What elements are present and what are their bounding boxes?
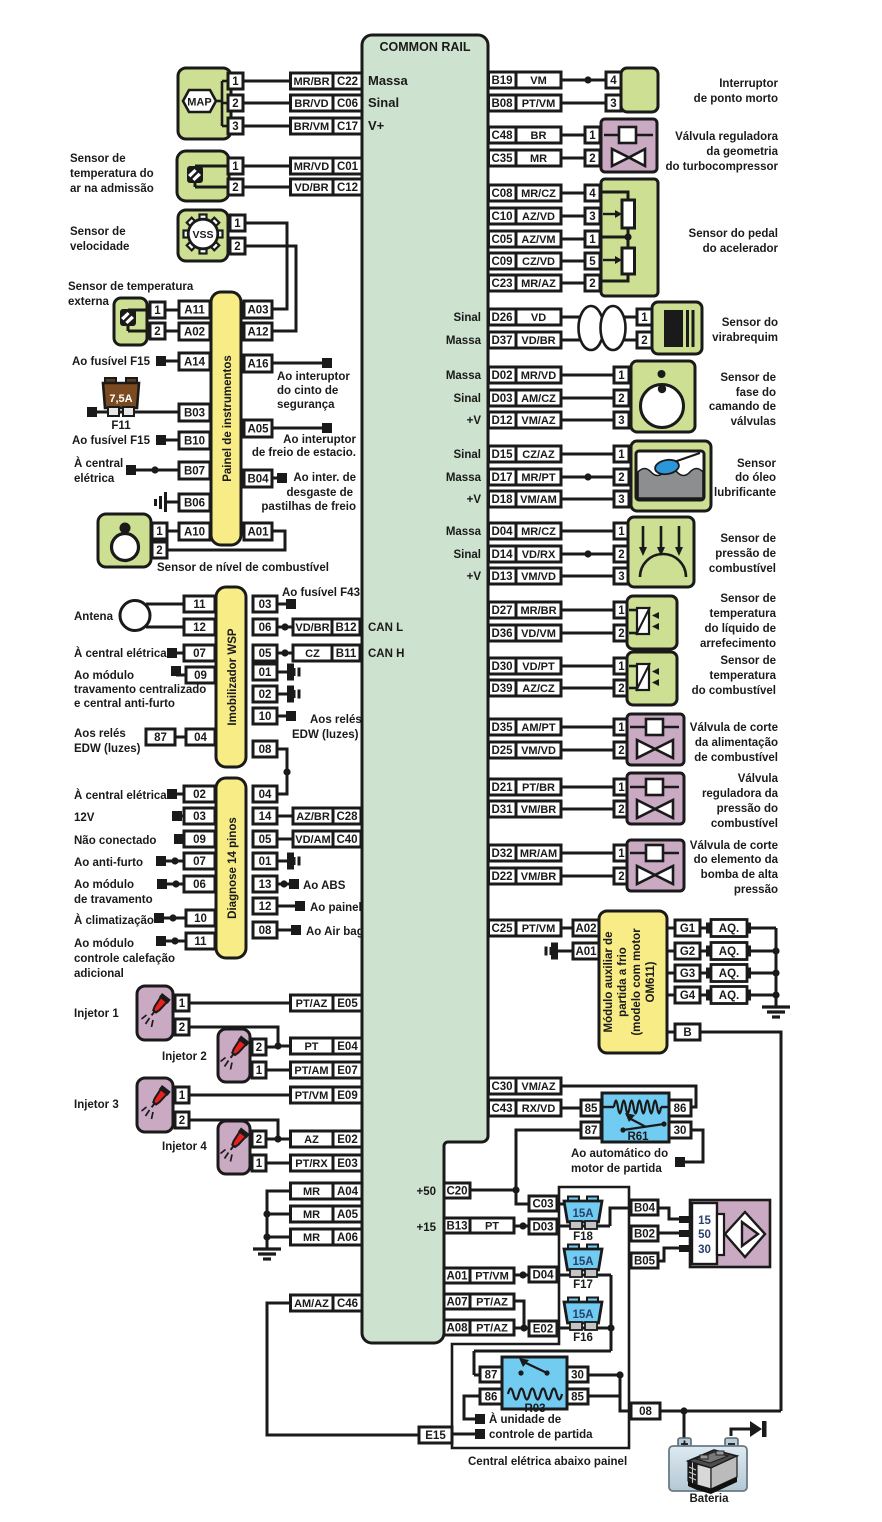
svg-text:F11: F11 [111, 420, 131, 432]
svg-text:D22: D22 [491, 871, 512, 883]
svg-text:do combustível: do combustível [692, 685, 776, 697]
svg-text:de combustível: de combustível [694, 752, 778, 764]
svg-text:AZ/BR: AZ/BR [296, 811, 330, 823]
svg-text:D35: D35 [491, 722, 513, 734]
svg-text:05: 05 [259, 648, 272, 660]
svg-text:D15: D15 [491, 449, 513, 461]
svg-text:12: 12 [259, 901, 272, 913]
svg-text:1: 1 [232, 76, 239, 88]
svg-text:C17: C17 [337, 121, 358, 133]
svg-text:CAN L: CAN L [368, 622, 403, 634]
svg-text:13: 13 [259, 879, 272, 891]
svg-text:Sensor de: Sensor de [720, 533, 776, 545]
svg-text:A02: A02 [575, 923, 596, 935]
svg-text:D03: D03 [491, 393, 512, 405]
svg-text:Injetor 2: Injetor 2 [162, 1051, 207, 1063]
svg-text:temperatura: temperatura [710, 670, 777, 682]
svg-text:2: 2 [618, 683, 624, 695]
svg-text:CAN H: CAN H [368, 648, 404, 660]
svg-text:MR/PT: MR/PT [521, 472, 556, 484]
svg-text:02: 02 [259, 689, 272, 701]
svg-text:B06: B06 [184, 498, 205, 510]
svg-text:C43: C43 [491, 1103, 512, 1115]
svg-text:2: 2 [618, 472, 624, 484]
svg-text:E05: E05 [337, 998, 358, 1010]
svg-text:02: 02 [193, 789, 206, 801]
svg-text:do elemento da: do elemento da [694, 854, 779, 866]
svg-text:Módulo auxiliar de: Módulo auxiliar de [603, 932, 615, 1033]
svg-text:A06: A06 [337, 1232, 358, 1244]
svg-text:3: 3 [618, 494, 624, 506]
svg-text:F18: F18 [573, 1231, 593, 1243]
svg-text:Sensor de temperatura: Sensor de temperatura [68, 281, 194, 293]
svg-text:A05: A05 [247, 424, 269, 436]
svg-text:MR: MR [303, 1232, 320, 1244]
svg-text:VM: VM [530, 75, 547, 87]
svg-text:B08: B08 [491, 98, 513, 110]
svg-text:D37: D37 [491, 335, 512, 347]
svg-text:A16: A16 [247, 359, 268, 371]
svg-text:Ao inter. de: Ao inter. de [293, 472, 356, 484]
svg-text:Válvula de corte: Válvula de corte [690, 722, 778, 734]
svg-text:14: 14 [259, 811, 272, 823]
svg-text:Ao fusível F15: Ao fusível F15 [72, 356, 151, 368]
svg-text:e central anti-furto: e central anti-furto [74, 698, 175, 710]
svg-text:externa: externa [68, 296, 110, 308]
svg-text:PT/VM: PT/VM [475, 1271, 509, 1283]
svg-text:C06: C06 [337, 98, 358, 110]
svg-text:VM/BR: VM/BR [521, 804, 557, 816]
svg-text:1: 1 [179, 1090, 186, 1102]
svg-text:de freio de estacio.: de freio de estacio. [252, 447, 356, 459]
svg-text:1: 1 [618, 722, 625, 734]
svg-text:G1: G1 [680, 923, 696, 935]
svg-text:segurança: segurança [277, 399, 335, 411]
svg-text:D27: D27 [491, 605, 512, 617]
svg-text:CZ: CZ [305, 648, 320, 660]
svg-text:2: 2 [156, 545, 162, 557]
svg-text:Ao fusível F15: Ao fusível F15 [72, 435, 151, 447]
svg-text:partida a frio: partida a frio [617, 947, 629, 1017]
svg-text:Ao painel: Ao painel [310, 902, 362, 914]
svg-text:de ponto morto: de ponto morto [694, 93, 778, 105]
svg-text:D02: D02 [491, 370, 512, 382]
svg-text:VD/BR: VD/BR [521, 335, 555, 347]
svg-text:A01: A01 [575, 946, 597, 958]
svg-text:VD/AM: VD/AM [295, 834, 330, 846]
svg-text:COMMON RAIL: COMMON RAIL [380, 40, 471, 54]
svg-text:11: 11 [194, 936, 207, 948]
svg-text:G3: G3 [680, 968, 695, 980]
svg-text:B13: B13 [446, 1221, 467, 1233]
svg-text:11: 11 [193, 599, 206, 611]
svg-text:MR: MR [303, 1186, 320, 1198]
svg-text:A14: A14 [184, 357, 206, 369]
svg-text:VD/PT: VD/PT [522, 661, 555, 673]
svg-text:do cinto de: do cinto de [277, 385, 338, 397]
svg-text:BR: BR [531, 130, 547, 142]
svg-text:3: 3 [589, 211, 595, 223]
svg-text:C03: C03 [532, 1199, 553, 1211]
svg-text:2: 2 [179, 1022, 185, 1034]
svg-text:Aos relés: Aos relés [74, 728, 126, 740]
svg-text:1: 1 [618, 370, 625, 382]
svg-text:Sensor de: Sensor de [70, 226, 126, 238]
svg-text:2: 2 [618, 804, 624, 816]
svg-text:3: 3 [618, 571, 624, 583]
svg-text:87: 87 [485, 1370, 498, 1382]
svg-text:Ao interuptor: Ao interuptor [283, 434, 356, 446]
svg-text:C22: C22 [337, 76, 358, 88]
svg-text:PT/VM: PT/VM [522, 923, 556, 935]
svg-text:G2: G2 [680, 946, 695, 958]
svg-text:motor de partida: motor de partida [571, 1163, 662, 1175]
svg-text:PT/BR: PT/BR [522, 782, 555, 794]
svg-text:Ao fusível F43: Ao fusível F43 [282, 587, 360, 599]
svg-text:D31: D31 [491, 804, 513, 816]
svg-text:2: 2 [232, 98, 238, 110]
svg-text:D13: D13 [491, 571, 512, 583]
svg-text:87: 87 [585, 1125, 598, 1137]
svg-text:EDW (luzes): EDW (luzes) [74, 743, 141, 755]
svg-text:2: 2 [234, 241, 240, 253]
svg-text:MR/AM: MR/AM [520, 848, 557, 860]
svg-text:30: 30 [571, 1370, 584, 1382]
svg-text:D18: D18 [491, 494, 513, 506]
svg-text:05: 05 [259, 834, 272, 846]
svg-text:+15: +15 [416, 1222, 436, 1234]
svg-text:MR/CZ: MR/CZ [521, 526, 556, 538]
svg-text:1: 1 [641, 312, 648, 324]
svg-text:MR/VD: MR/VD [294, 161, 330, 173]
svg-text:da alimentação: da alimentação [695, 737, 778, 749]
svg-text:E07: E07 [337, 1065, 357, 1077]
svg-text:PT/AZ: PT/AZ [476, 1297, 508, 1309]
svg-text:PT/VM: PT/VM [522, 98, 556, 110]
svg-text:86: 86 [674, 1103, 687, 1115]
svg-text:controle calefação: controle calefação [74, 953, 175, 965]
svg-text:D21: D21 [491, 782, 513, 794]
svg-text:03: 03 [259, 599, 272, 611]
svg-text:85: 85 [571, 1392, 584, 1404]
svg-text:E09: E09 [337, 1090, 357, 1102]
svg-text:Válvula de corte: Válvula de corte [690, 840, 778, 852]
svg-text:01: 01 [259, 667, 272, 679]
svg-text:C08: C08 [491, 188, 513, 200]
svg-text:A05: A05 [337, 1209, 359, 1221]
svg-text:2: 2 [618, 628, 624, 640]
svg-text:D36: D36 [491, 628, 512, 640]
svg-text:B12: B12 [335, 622, 356, 634]
svg-text:D39: D39 [491, 683, 512, 695]
svg-text:85: 85 [585, 1103, 598, 1115]
svg-text:50: 50 [698, 1229, 711, 1241]
svg-text:F17: F17 [573, 1279, 593, 1291]
svg-text:Sinal: Sinal [454, 393, 481, 405]
svg-text:Não conectado: Não conectado [74, 835, 156, 847]
svg-text:1: 1 [618, 782, 625, 794]
svg-text:B02: B02 [634, 1229, 655, 1241]
svg-text:15: 15 [698, 1215, 711, 1227]
svg-text:7,5A: 7,5A [109, 393, 132, 405]
svg-text:4: 4 [610, 75, 617, 87]
svg-text:VM/AZ: VM/AZ [521, 415, 556, 427]
svg-text:12: 12 [193, 622, 206, 634]
svg-text:B05: B05 [634, 1256, 656, 1268]
svg-text:C35: C35 [491, 153, 513, 165]
svg-text:MAP: MAP [187, 97, 211, 109]
svg-text:C09: C09 [491, 256, 512, 268]
svg-text:(modelo com motor: (modelo com motor [631, 928, 643, 1036]
svg-text:Bateria: Bateria [690, 1493, 730, 1505]
svg-text:Ao ABS: Ao ABS [303, 880, 346, 892]
svg-text:3: 3 [610, 98, 616, 110]
svg-text:+V: +V [467, 494, 482, 506]
svg-text:+V: +V [467, 571, 482, 583]
svg-text:30: 30 [674, 1125, 687, 1137]
svg-text:08: 08 [259, 744, 272, 756]
svg-text:D04: D04 [532, 1270, 554, 1282]
svg-text:PT/AM: PT/AM [294, 1065, 328, 1077]
svg-text:V+: V+ [368, 118, 385, 133]
svg-text:reguladora da: reguladora da [702, 788, 779, 800]
svg-text:VD/BR: VD/BR [294, 182, 328, 194]
svg-text:1: 1 [179, 998, 186, 1010]
svg-text:Antena: Antena [74, 611, 114, 623]
svg-text:AQ.: AQ. [719, 968, 739, 980]
svg-text:2: 2 [618, 549, 624, 561]
svg-text:C25: C25 [491, 923, 513, 935]
svg-text:A02: A02 [184, 327, 205, 339]
svg-text:09: 09 [193, 834, 206, 846]
svg-text:Sinal: Sinal [454, 549, 481, 561]
svg-text:A01: A01 [247, 527, 269, 539]
svg-text:pressão do: pressão do [717, 803, 778, 815]
svg-text:2: 2 [154, 326, 160, 338]
svg-text:2: 2 [179, 1115, 185, 1127]
svg-text:pressão: pressão [734, 884, 778, 896]
svg-text:VD/BR: VD/BR [295, 622, 329, 634]
svg-text:B10: B10 [184, 436, 205, 448]
svg-text:PT/RX: PT/RX [295, 1158, 328, 1170]
svg-text:04: 04 [259, 789, 272, 801]
svg-text:Ao módulo: Ao módulo [74, 938, 134, 950]
svg-text:Sensor do pedal: Sensor do pedal [689, 228, 778, 240]
svg-text:Válvula: Válvula [738, 773, 779, 785]
svg-text:de travamento: de travamento [74, 894, 153, 906]
svg-text:AQ.: AQ. [719, 990, 739, 1002]
svg-text:A01: A01 [446, 1271, 468, 1283]
svg-text:C20: C20 [446, 1186, 467, 1198]
svg-text:AM/PT: AM/PT [521, 722, 556, 734]
svg-text:Aos relés: Aos relés [310, 714, 362, 726]
svg-text:AZ: AZ [304, 1134, 319, 1146]
svg-text:Sensor de: Sensor de [720, 372, 776, 384]
svg-text:À central: À central [74, 457, 123, 470]
svg-text:Ao interuptor: Ao interuptor [277, 371, 350, 383]
svg-text:Massa: Massa [368, 73, 409, 88]
svg-text:do líquido de: do líquido de [704, 623, 776, 635]
svg-text:temperatura: temperatura [710, 608, 777, 620]
svg-text:C10: C10 [491, 211, 512, 223]
svg-text:1: 1 [618, 526, 625, 538]
svg-text:Painel de instrumentos: Painel de instrumentos [222, 355, 234, 482]
svg-text:OM611): OM611) [645, 961, 657, 1002]
svg-text:A12: A12 [247, 327, 268, 339]
svg-text:virabrequim: virabrequim [712, 332, 778, 344]
svg-text:Massa: Massa [446, 335, 482, 347]
svg-text:Ao módulo: Ao módulo [74, 879, 134, 891]
svg-text:desgaste de: desgaste de [287, 487, 353, 499]
svg-text:Central elétrica abaixo painel: Central elétrica abaixo painel [468, 1456, 627, 1468]
svg-text:BR/VM: BR/VM [294, 121, 329, 133]
svg-text:Sensor: Sensor [737, 458, 777, 470]
svg-text:2: 2 [589, 278, 595, 290]
svg-text:1: 1 [154, 305, 161, 317]
svg-text:C23: C23 [491, 278, 512, 290]
svg-text:pressão de: pressão de [715, 548, 776, 560]
svg-text:06: 06 [259, 622, 272, 634]
svg-text:pastilhas de freio: pastilhas de freio [261, 501, 356, 513]
svg-text:do óleo: do óleo [735, 472, 776, 484]
svg-text:fase do: fase do [736, 387, 776, 399]
svg-text:da geometria: da geometria [706, 146, 778, 158]
svg-text:BR/VD: BR/VD [294, 98, 328, 110]
svg-text:Sinal: Sinal [454, 312, 481, 324]
svg-text:C46: C46 [337, 1298, 358, 1310]
svg-text:87: 87 [154, 732, 167, 744]
svg-text:AZ/CZ: AZ/CZ [522, 683, 555, 695]
svg-text:VM/BR: VM/BR [521, 871, 557, 883]
svg-text:12V: 12V [74, 812, 95, 824]
svg-text:07: 07 [193, 648, 206, 660]
svg-text:VD: VD [531, 312, 546, 324]
svg-text:08: 08 [259, 925, 272, 937]
svg-text:Ao módulo: Ao módulo [74, 670, 134, 682]
svg-text:Sinal: Sinal [454, 449, 481, 461]
svg-text:07: 07 [193, 856, 206, 868]
svg-text:C12: C12 [337, 182, 358, 194]
svg-text:MR: MR [530, 153, 547, 165]
svg-text:EDW (luzes): EDW (luzes) [292, 729, 359, 741]
svg-text:01: 01 [259, 856, 272, 868]
svg-text:Ao anti-furto: Ao anti-furto [74, 857, 143, 869]
svg-text:D25: D25 [491, 745, 513, 757]
svg-text:camando de: camando de [709, 401, 776, 413]
svg-text:D12: D12 [491, 415, 512, 427]
svg-text:1: 1 [618, 605, 625, 617]
svg-text:D26: D26 [491, 312, 512, 324]
svg-text:C01: C01 [337, 161, 359, 173]
svg-text:VM/VD: VM/VD [521, 745, 556, 757]
svg-text:ar na admissão: ar na admissão [70, 183, 154, 195]
svg-text:E04: E04 [337, 1041, 358, 1053]
svg-text:Válvula reguladora: Válvula reguladora [675, 131, 779, 143]
svg-text:combustível: combustível [711, 818, 778, 830]
svg-text:Massa: Massa [446, 370, 482, 382]
svg-text:D14: D14 [491, 549, 513, 561]
svg-text:travamento centralizado: travamento centralizado [74, 684, 206, 696]
svg-text:2: 2 [232, 182, 238, 194]
svg-text:Massa: Massa [446, 526, 482, 538]
svg-text:PT/AZ: PT/AZ [476, 1323, 508, 1335]
svg-text:B: B [683, 1027, 691, 1039]
svg-text:PT/AZ: PT/AZ [296, 998, 328, 1010]
svg-text:Injetor 3: Injetor 3 [74, 1099, 119, 1111]
svg-text:lubrificante: lubrificante [714, 487, 776, 499]
svg-text:2: 2 [256, 1134, 262, 1146]
svg-text:A10: A10 [184, 527, 205, 539]
svg-text:válvulas: válvulas [731, 416, 776, 428]
svg-text:C05: C05 [491, 234, 513, 246]
svg-text:F16: F16 [573, 1332, 593, 1344]
svg-text:C40: C40 [336, 834, 357, 846]
svg-text:À central elétrica: À central elétrica [74, 789, 167, 802]
svg-text:C28: C28 [336, 811, 358, 823]
svg-text:Ao automático do: Ao automático do [571, 1148, 668, 1160]
svg-text:D04: D04 [491, 526, 513, 538]
svg-text:E02: E02 [533, 1324, 553, 1336]
svg-text:2: 2 [618, 393, 624, 405]
svg-text:CZ/VD: CZ/VD [522, 256, 555, 268]
svg-text:elétrica: elétrica [74, 473, 115, 485]
svg-text:2: 2 [618, 745, 624, 757]
svg-text:Massa: Massa [446, 472, 482, 484]
svg-text:A07: A07 [446, 1297, 467, 1309]
svg-text:04: 04 [194, 732, 207, 744]
svg-text:MR/VD: MR/VD [521, 370, 557, 382]
svg-text:Sensor de: Sensor de [720, 655, 776, 667]
svg-text:1: 1 [589, 234, 596, 246]
svg-text:bomba de alta: bomba de alta [701, 869, 779, 881]
svg-text:adicional: adicional [74, 968, 124, 980]
svg-text:D32: D32 [491, 848, 512, 860]
svg-text:1: 1 [156, 526, 163, 538]
svg-text:10: 10 [259, 711, 272, 723]
svg-text:15A: 15A [572, 1309, 593, 1321]
svg-text:Interruptor: Interruptor [719, 78, 778, 90]
svg-text:08: 08 [639, 1406, 652, 1418]
svg-text:RX/VD: RX/VD [522, 1103, 556, 1115]
svg-text:do acelerador: do acelerador [703, 243, 779, 255]
svg-text:B19: B19 [491, 75, 512, 87]
svg-text:PT: PT [304, 1041, 318, 1053]
svg-text:controle de partida: controle de partida [489, 1429, 593, 1441]
svg-text:velocidade: velocidade [70, 241, 129, 253]
svg-text:À central elétrica: À central elétrica [74, 647, 167, 660]
svg-text:03: 03 [193, 811, 206, 823]
svg-text:Sensor de nível de combustível: Sensor de nível de combustível [157, 562, 329, 574]
svg-text:C48: C48 [491, 130, 513, 142]
svg-text:AM/CZ: AM/CZ [521, 393, 556, 405]
svg-text:PT/VM: PT/VM [295, 1090, 329, 1102]
svg-text:temperatura do: temperatura do [70, 168, 154, 180]
svg-text:10: 10 [194, 913, 207, 925]
svg-text:PT: PT [485, 1221, 499, 1233]
svg-text:+V: +V [467, 415, 482, 427]
svg-text:B04: B04 [247, 474, 269, 486]
svg-text:06: 06 [193, 879, 206, 891]
svg-text:E03: E03 [337, 1158, 357, 1170]
svg-text:Sensor do: Sensor do [722, 317, 778, 329]
svg-text:2: 2 [589, 153, 595, 165]
svg-text:MR/BR: MR/BR [293, 76, 329, 88]
svg-text:09: 09 [194, 670, 207, 682]
svg-text:B07: B07 [184, 466, 205, 478]
svg-text:E02: E02 [337, 1134, 357, 1146]
svg-text:E15: E15 [425, 1430, 446, 1442]
svg-text:G4: G4 [680, 990, 696, 1002]
